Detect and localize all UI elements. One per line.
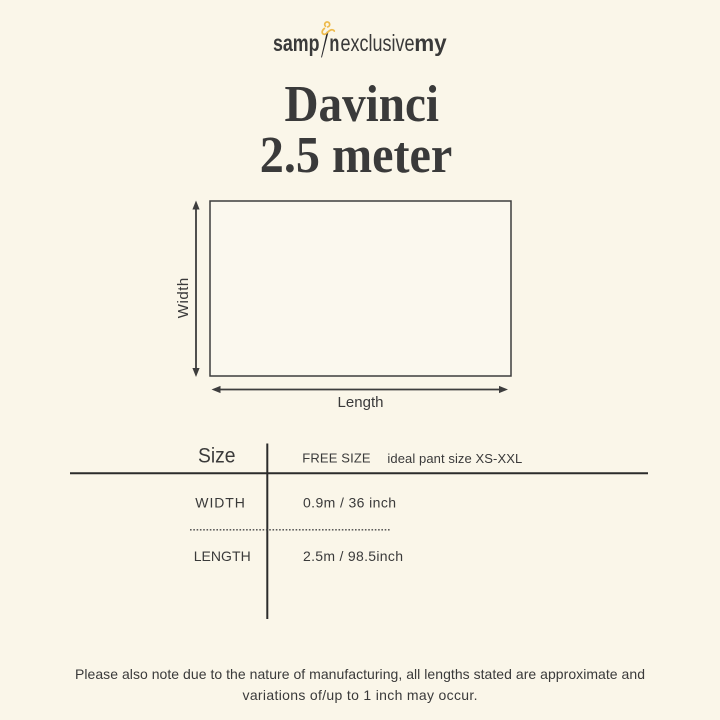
svg-text:LENGTH: LENGTH	[194, 548, 251, 564]
svg-text:Davinci: Davinci	[285, 76, 440, 133]
svg-text:WIDTH: WIDTH	[195, 495, 245, 511]
svg-text:variations of/up to 1 inch may: variations of/up to 1 inch may occur.	[243, 687, 478, 703]
svg-text:2.5m / 98.5inch: 2.5m / 98.5inch	[303, 548, 403, 564]
svg-text:Please also note due to the na: Please also note due to the nature of ma…	[75, 666, 645, 682]
svg-text:Size: Size	[198, 445, 236, 468]
svg-text:Width: Width	[175, 278, 192, 319]
svg-text:ideal pant size XS-XXL: ideal pant size XS-XXL	[387, 451, 522, 466]
svg-text:0.9m / 36 inch: 0.9m / 36 inch	[303, 495, 396, 511]
svg-text:my: my	[414, 30, 447, 56]
svg-text:samp: samp	[273, 30, 320, 56]
svg-text:exclusive: exclusive	[341, 30, 415, 56]
svg-text:2.5 meter: 2.5 meter	[260, 127, 453, 184]
svg-text:Length: Length	[338, 394, 384, 411]
svg-text:FREE SIZE: FREE SIZE	[302, 450, 371, 465]
svg-text:n: n	[329, 30, 339, 56]
